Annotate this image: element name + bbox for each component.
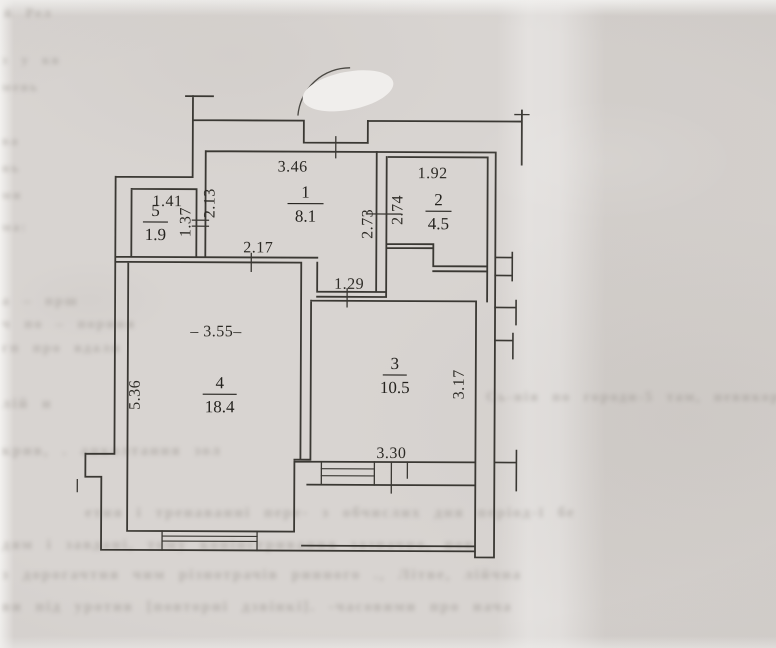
room-2-number: 2 <box>434 190 443 209</box>
dimension-label-5.36: 5.36 <box>127 380 144 410</box>
dimension-label-3.17: 3.17 <box>451 369 468 399</box>
room-1-number: 1 <box>301 183 310 202</box>
adjacent-structure-stubs <box>494 252 517 490</box>
plan-labels: 18.124.5310.5418.451.93.461.921.411.372.… <box>126 158 468 462</box>
dimension-label-2.13: 2.13 <box>201 188 218 218</box>
dimension-label-2.73: 2.73 <box>359 209 376 239</box>
redaction-blob <box>299 64 396 118</box>
room-2-area: 4.5 <box>428 214 449 233</box>
room-4-area: 18.4 <box>205 397 235 416</box>
photographed-floor-plan-sheet: й Релз у квменьваньмима:а – пршч по – по… <box>0 0 776 648</box>
dimension-label-1.37: 1.37 <box>177 207 194 237</box>
dimension-label-3.55: – 3.55– <box>189 323 242 340</box>
dimension-label-1.92: 1.92 <box>418 165 448 182</box>
dimension-label-2.74: 2.74 <box>389 195 406 225</box>
room-5-area: 1.9 <box>145 225 166 244</box>
dimension-label-1.29: 1.29 <box>334 276 364 293</box>
room-4-number: 4 <box>215 373 224 392</box>
dimension-label-2.17: 2.17 <box>243 239 273 256</box>
dimension-label-3.46: 3.46 <box>278 159 308 176</box>
room-3-area: 10.5 <box>380 378 410 397</box>
dimension-label-3.30: 3.30 <box>376 445 406 462</box>
room-3-number: 3 <box>391 354 400 373</box>
floor-plan-drawing: 18.124.5310.5418.451.93.461.921.411.372.… <box>0 0 776 648</box>
room-1-area: 8.1 <box>295 207 316 226</box>
